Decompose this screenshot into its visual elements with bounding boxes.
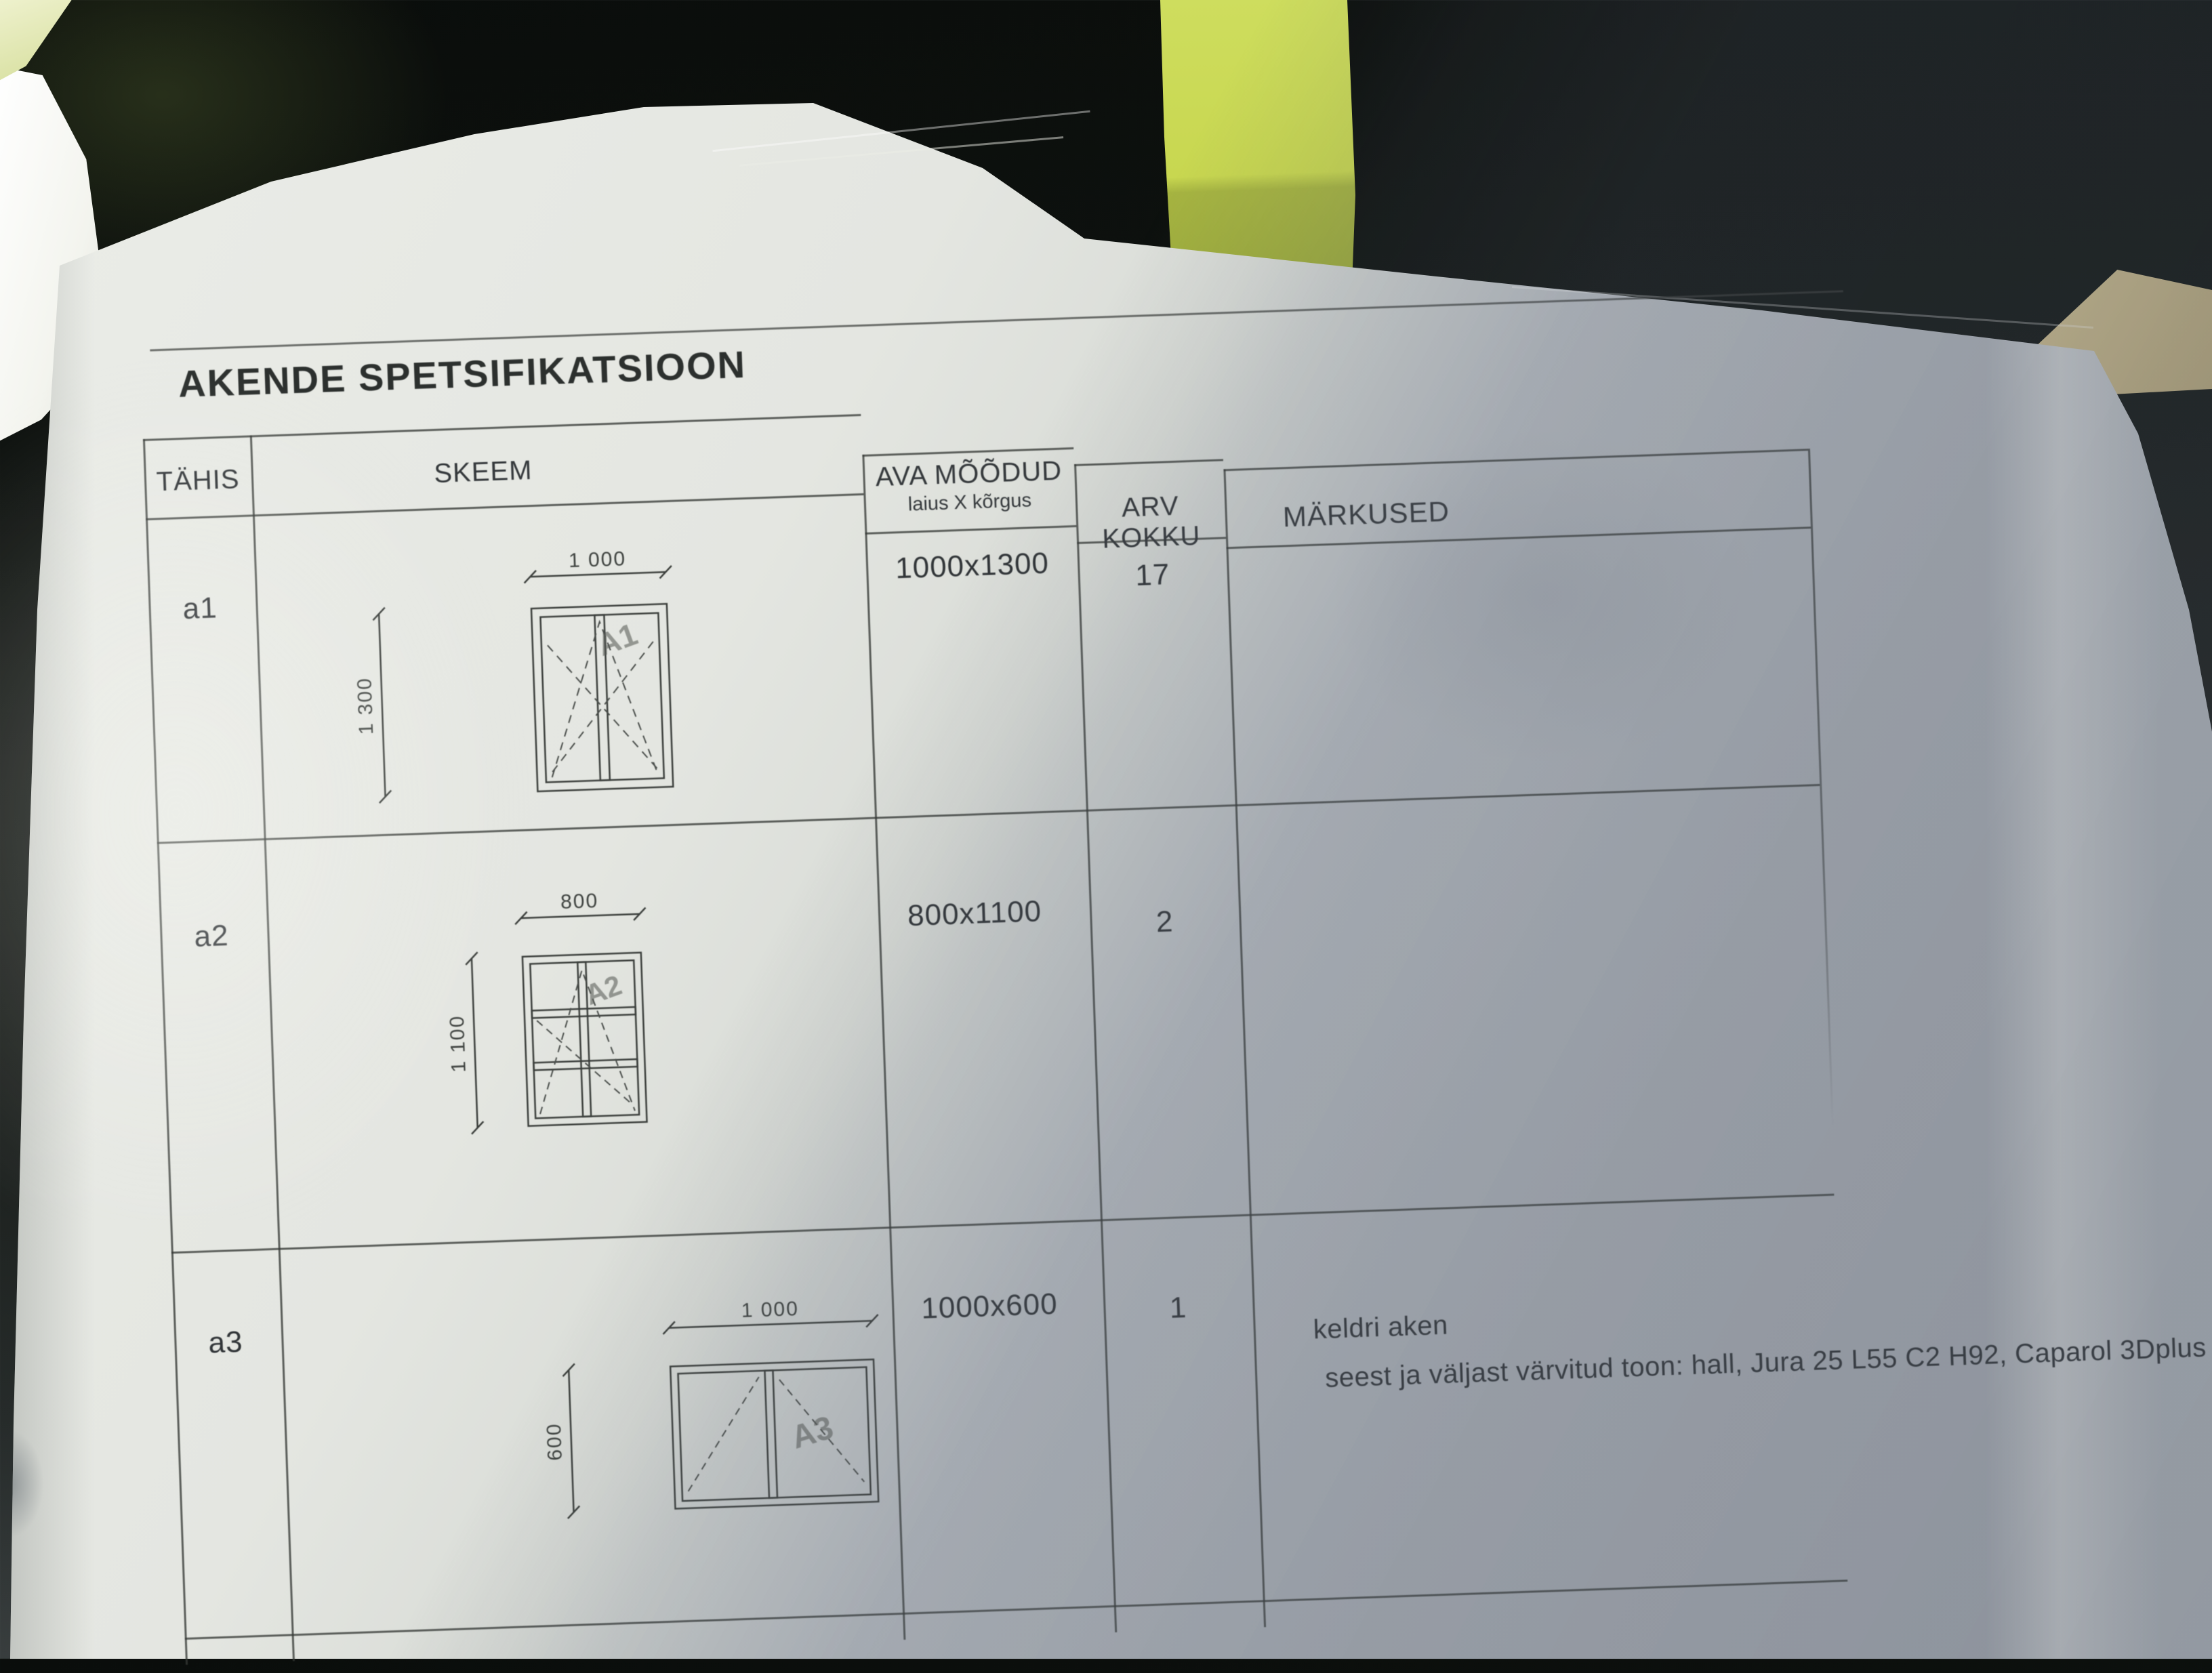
header-cell-markused: [1223, 449, 1811, 549]
document-content: AKENDE SPETSIFIKATSIOON TÄHIS SKEEM AVA …: [102, 255, 2167, 1673]
markused-note-line: keldri aken: [1313, 1310, 1448, 1346]
width-dimension-label: 800: [560, 890, 599, 913]
arv-kokku-value: 1: [1103, 1289, 1254, 1328]
spec-table: TÄHIS SKEEM AVA MÕÕDUD laius X kõrgus AR…: [143, 381, 1852, 1665]
width-dimension-label: 1 000: [741, 1298, 799, 1322]
height-dimension-label: 600: [543, 1422, 567, 1461]
markused-note-line: seest ja väljast värvitud toon: hall, Ju…: [1325, 1333, 2207, 1394]
page-title: AKENDE SPETSIFIKATSIOON: [178, 342, 747, 406]
photo-of-document: { "photo": { "background_color": "#12161…: [0, 0, 2212, 1659]
height-dimension-label: 1 100: [446, 1014, 470, 1073]
column-header-markused: MÄRKUSED: [1282, 495, 1450, 534]
ava-moodud-value: 1000x600: [921, 1287, 1059, 1326]
window-diagram-a1: 1 000 1 300 A1: [346, 539, 695, 848]
ava-moodud-value: 1000x1300: [895, 546, 1049, 585]
sketch-label: A3: [787, 1409, 838, 1456]
arv-kokku-value: 2: [1090, 903, 1240, 942]
window-diagram-a3: 1 000 600 A3: [539, 1294, 900, 1537]
ava-moodud-value: 800x1100: [907, 894, 1042, 933]
column-header-arv-kokku: ARV KOKKU: [1076, 489, 1227, 556]
column-divider: [1074, 464, 1117, 1632]
row-tahis-label: a2: [173, 917, 283, 955]
row-tahis-label: a3: [188, 1323, 298, 1361]
height-dimension-label: 1 300: [353, 677, 377, 735]
arv-kokku-value: 17: [1078, 556, 1228, 595]
table-right-border: [1808, 449, 1834, 1125]
column-divider: [1223, 469, 1266, 1627]
row-tahis-label: a1: [162, 590, 272, 627]
column-header-tahis: TÄHIS: [144, 463, 251, 497]
row-divider: [171, 1194, 1835, 1254]
width-dimension-label: 1 000: [568, 548, 626, 572]
window-diagram-a2: 800 1 100 A2: [425, 881, 665, 1174]
